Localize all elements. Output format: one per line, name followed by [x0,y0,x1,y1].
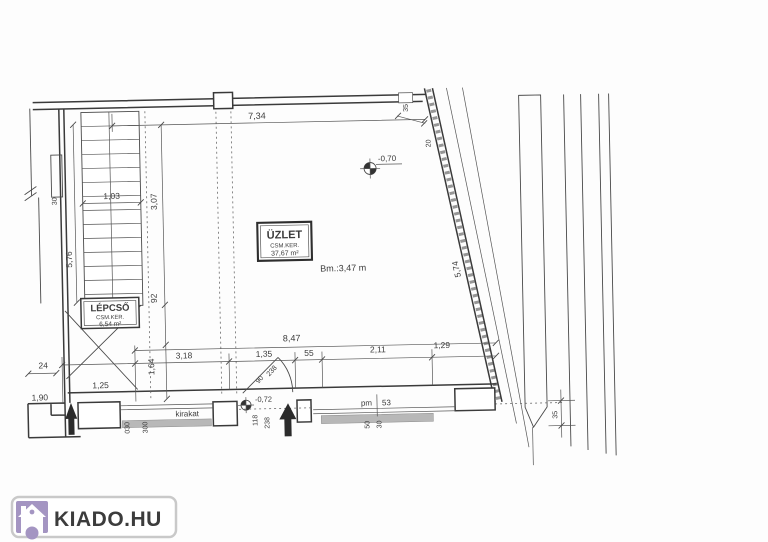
wall-pier [297,400,311,422]
entrance-arrow [279,403,297,436]
dim-slant-length: 5,74 [450,260,463,279]
room-label-box: ÜZLET CSM.KER. 37,67 m² [257,222,312,261]
dim-top-right-a: 35 [403,104,410,112]
dim-door-sill: 118 [252,415,259,426]
dim-win-a: 50 [364,421,371,429]
wall-pier [213,401,237,425]
ceiling-height-note: Bm.:3,47 m [320,263,366,274]
dim-wall-thickness: 30 [52,197,59,205]
dim-stair-run: 3,07 [149,193,159,210]
stairs-title: LÉPCSŐ [90,302,129,315]
dim-depth: 1,64 [146,358,156,375]
dim-sill-b: 300 [142,421,149,433]
storefront: kirakat 90 238 -0,72 118 238 pm [64,353,498,441]
parapet-prefix: pm [361,399,373,408]
parapet-value: 53 [382,398,392,407]
stairs-area: 6,54 m² [99,321,122,328]
dim-top-width: 7,34 [248,111,266,121]
dim-left-small: 24 [38,360,48,370]
hatched-wall-strip [519,95,548,427]
dim-landing: 92 [149,293,159,303]
dim-bottom-width: 8,47 [283,333,301,343]
dim-seg1: 3,18 [176,350,193,360]
wall-pier [78,402,121,429]
stairs-label-box: LÉPCSŐ CSM.KER. 6,54 m² [81,297,140,328]
dim-win-b: 30 [376,420,383,428]
window-sill [122,419,211,428]
dim-seg4: 2,11 [370,344,386,354]
dim-left-height: 5,76 [64,251,74,268]
floorplan-page: LÉPCSŐ CSM.KER. 6,54 m² 5,74 35 [0,0,768,542]
left-entrance-arrow [65,403,78,435]
dim-sill-a: 030 [124,422,131,434]
dim-right-gap: 35 [552,411,559,419]
dim-door-height: 238 [266,365,279,378]
dim-stair-width: 1,03 [103,191,120,201]
level-room-value: -0,70 [378,154,397,163]
shop-window-label: kirakat [175,409,200,419]
dim-seg5: 1,29 [433,340,450,350]
level-marker-room: -0,70 [360,154,402,179]
logo-text: KIADO.HU [54,508,162,531]
dim-left-wall: 1,90 [31,392,48,402]
dim-left-win: 1,25 [92,380,109,390]
dim-door-width: 90 [255,375,265,386]
right-structure: 35 [489,94,617,466]
dim-top-right-b: 20 [426,139,433,147]
dim-seg3: 55 [304,348,314,358]
wall-pier [455,388,495,411]
dim-seg2: 1,35 [256,349,273,359]
room-subtitle: CSM.KER. [270,243,299,250]
door-swing-arc [278,357,293,392]
level-marker-entry: -0,72 [238,395,272,414]
kiado-logo[interactable]: KIADO.HU [12,497,176,540]
room-title: ÜZLET [267,228,303,242]
plan-drawing: LÉPCSŐ CSM.KER. 6,54 m² 5,74 35 [20,85,617,476]
column-block [213,92,232,108]
level-entry-value: -0,72 [255,395,272,404]
dim-door-clear: 238 [264,417,271,429]
floorplan-canvas: LÉPCSŐ CSM.KER. 6,54 m² 5,74 35 [0,0,768,542]
room-area: 37,67 m² [271,250,299,258]
